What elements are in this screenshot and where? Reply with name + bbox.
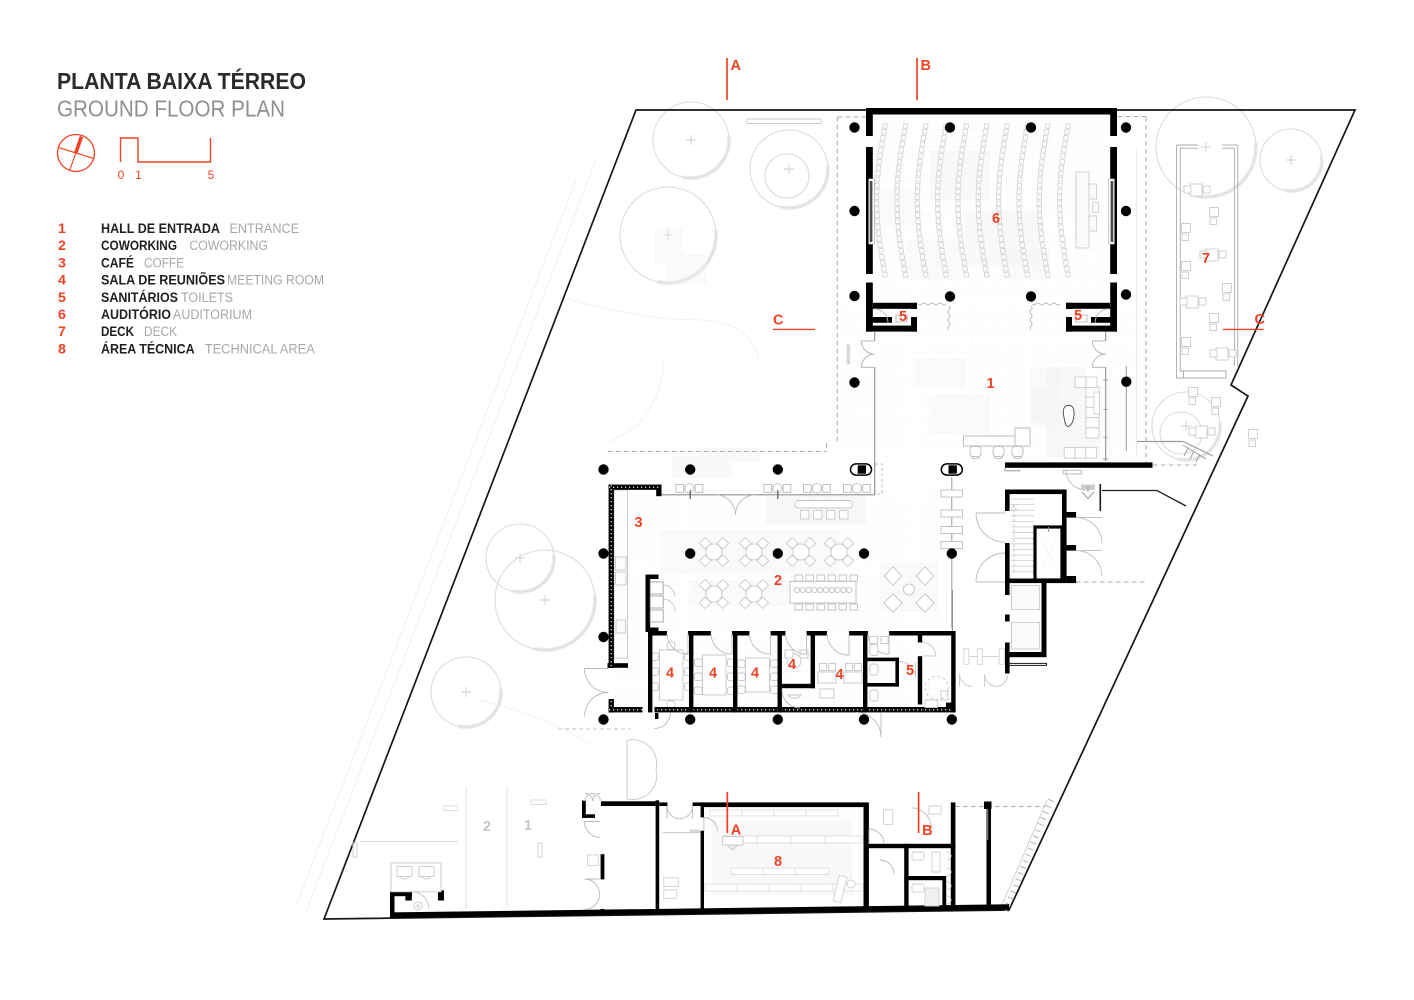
- svg-text:PLANTA BAIXA TÉRREO: PLANTA BAIXA TÉRREO: [57, 67, 306, 94]
- svg-text:3: 3: [58, 255, 66, 271]
- svg-text:1: 1: [135, 168, 142, 182]
- svg-text:0: 0: [118, 168, 125, 182]
- svg-text:A: A: [731, 823, 742, 839]
- svg-text:MEETING ROOM: MEETING ROOM: [227, 273, 324, 289]
- svg-text:AUDITÓRIO: AUDITÓRIO: [101, 305, 171, 323]
- svg-text:DECK: DECK: [144, 324, 177, 340]
- svg-text:1: 1: [986, 376, 994, 392]
- svg-text:2: 2: [58, 238, 66, 254]
- svg-text:3: 3: [634, 515, 642, 531]
- svg-text:HALL DE ENTRADA: HALL DE ENTRADA: [101, 221, 220, 237]
- svg-text:GROUND FLOOR PLAN: GROUND FLOOR PLAN: [57, 96, 285, 122]
- svg-text:2: 2: [483, 819, 491, 835]
- svg-text:5: 5: [1074, 308, 1082, 324]
- svg-text:4: 4: [709, 666, 717, 682]
- svg-text:C: C: [773, 313, 784, 329]
- svg-text:COWORKING: COWORKING: [189, 238, 268, 254]
- svg-text:B: B: [921, 58, 931, 74]
- svg-text:ÁREA TÉCNICA: ÁREA TÉCNICA: [101, 340, 195, 357]
- svg-text:5: 5: [906, 663, 914, 679]
- svg-text:5: 5: [208, 168, 215, 182]
- svg-text:7: 7: [1202, 251, 1210, 267]
- svg-text:2: 2: [774, 573, 782, 589]
- svg-text:AUDITORIUM: AUDITORIUM: [173, 307, 252, 323]
- svg-text:4: 4: [666, 666, 674, 682]
- svg-text:5: 5: [899, 309, 907, 325]
- svg-text:1: 1: [58, 221, 66, 237]
- svg-text:CAFÉ: CAFÉ: [101, 254, 134, 271]
- svg-text:SALA DE REUNIÕES: SALA DE REUNIÕES: [101, 271, 225, 289]
- svg-text:DECK: DECK: [101, 324, 135, 340]
- svg-text:B: B: [922, 823, 932, 839]
- svg-text:COWORKING: COWORKING: [101, 238, 177, 254]
- svg-text:8: 8: [774, 854, 782, 870]
- svg-text:6: 6: [58, 307, 66, 323]
- svg-text:TOILETS: TOILETS: [181, 290, 233, 306]
- svg-text:6: 6: [992, 211, 1000, 227]
- svg-text:4: 4: [58, 273, 66, 289]
- svg-text:A: A: [731, 58, 742, 74]
- svg-text:ENTRANCE: ENTRANCE: [230, 221, 300, 237]
- svg-text:SANITÁRIOS: SANITÁRIOS: [101, 289, 178, 306]
- svg-text:1: 1: [524, 818, 532, 834]
- svg-text:7: 7: [58, 324, 66, 340]
- svg-text:8: 8: [58, 341, 66, 357]
- svg-text:4: 4: [788, 657, 796, 673]
- svg-text:5: 5: [58, 290, 66, 306]
- svg-text:COFFE: COFFE: [144, 255, 184, 271]
- svg-text:TECHNICAL AREA: TECHNICAL AREA: [205, 341, 315, 357]
- svg-text:4: 4: [751, 666, 759, 682]
- svg-text:4: 4: [835, 667, 843, 683]
- svg-text:C: C: [1255, 312, 1266, 328]
